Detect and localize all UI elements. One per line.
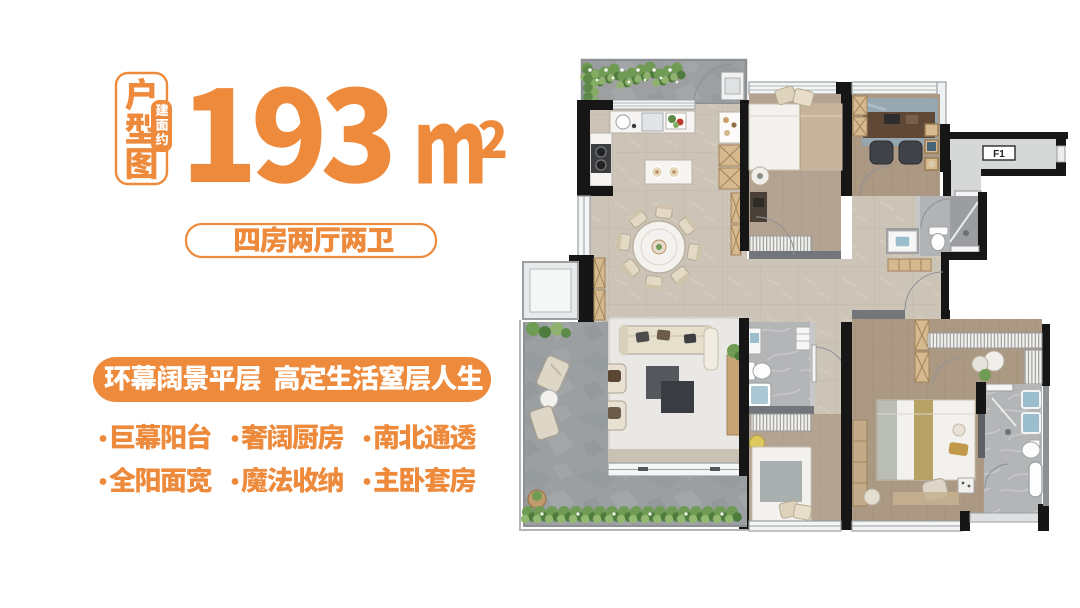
svg-text:F1: F1 [993,149,1005,160]
